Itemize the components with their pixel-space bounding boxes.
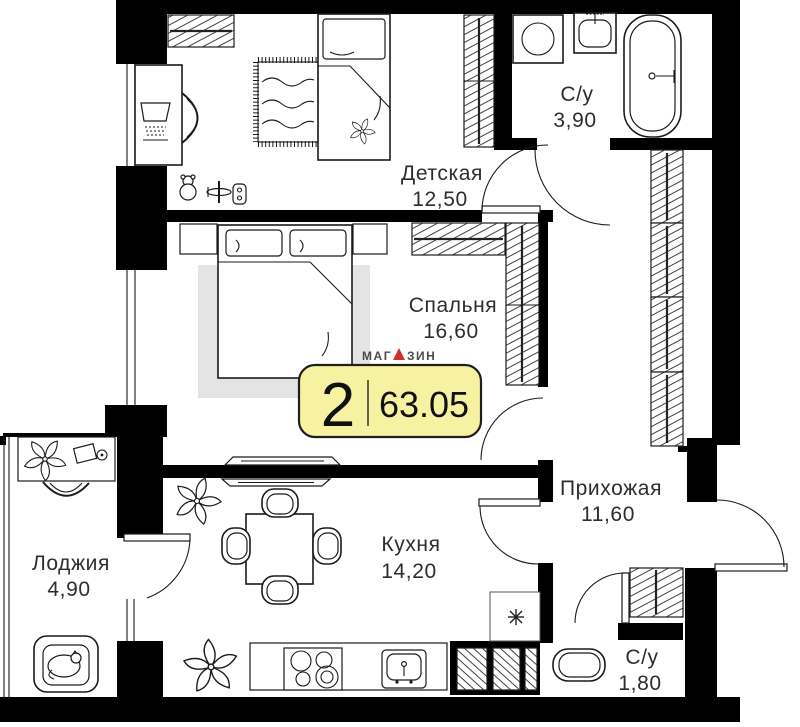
room-label-spalnya: Спальня: [409, 294, 498, 317]
floor-plan-page: Детская 12,50 С/у 3,90 Спальня 16,60 При…: [0, 0, 800, 727]
chair-icon: [262, 576, 298, 604]
window-spalnya-icon: [127, 270, 135, 405]
room-label-lodzhiya: Лоджия: [32, 552, 110, 575]
washbasin-icon: [574, 13, 616, 53]
nightstand-icon: [353, 224, 387, 254]
lodzhiya-glazing-icon: [4, 437, 9, 700]
chair-icon: [313, 528, 341, 564]
room-label-sanuzel-2: С/у: [625, 646, 658, 669]
room-label-detskaya: Детская: [401, 162, 483, 185]
balcony-desk-icon: [16, 430, 115, 488]
windows: [4, 64, 135, 700]
room-area-detskaya: 12,50: [412, 188, 468, 211]
window-kuhnya-lodzhiya-icon: [127, 599, 134, 641]
closet-detskaya-top-icon: [168, 15, 234, 47]
door-bathroom-bottom-icon: [575, 573, 629, 623]
wardrobe-entry-icon: [630, 568, 683, 617]
tv-kuhnya-icon: [222, 479, 330, 486]
wardrobe-spalnya-horizontal-icon: [412, 223, 505, 255]
room-label-prihozhaya: Прихожая: [560, 477, 662, 500]
wardrobe-hall-column-icon: [651, 150, 683, 446]
asterisk-icon: [508, 609, 524, 625]
rug-icon: [256, 60, 318, 144]
nightstand-icon: [180, 224, 217, 254]
single-bed-icon: [318, 14, 390, 160]
door-spalnya-icon: [481, 398, 543, 460]
window-detskaya-icon: [127, 64, 135, 166]
desk-icon: [135, 65, 182, 165]
furniture-kuhnya: [168, 472, 447, 698]
balcony-chair-icon: [43, 482, 89, 496]
tv-spalnya-icon: [225, 457, 340, 465]
room-label-sanuzel-1: С/у: [560, 83, 593, 106]
dining-table-icon: [246, 514, 313, 584]
logo-brand-part2: ЗИН: [407, 349, 436, 363]
room-area-sanuzel-1: 3,90: [553, 109, 596, 132]
plant-icon: [179, 635, 243, 698]
door-entrance-icon: [715, 500, 787, 571]
small-sink-icon: [553, 649, 605, 681]
floor-plan: Детская 12,50 С/у 3,90 Спальня 16,60 При…: [0, 0, 800, 727]
badge-rooms-count: 2: [321, 371, 355, 440]
chair-icon: [222, 528, 250, 564]
closet-detskaya-side-icon: [464, 15, 494, 147]
washing-machine-icon: [513, 15, 563, 63]
desk-chair-icon: [182, 93, 198, 143]
door-balcony-icon: [124, 534, 190, 598]
room-area-lodzhiya: 4,90: [47, 578, 90, 601]
logo-brand-part1: МАГ: [362, 349, 392, 363]
room-area-spalnya: 16,60: [423, 320, 479, 343]
badge-total-area: 63.05: [379, 384, 469, 425]
toys-icon: [180, 175, 246, 204]
vent-shaft-hatched-icon: [457, 648, 537, 690]
armchair-cat-icon: [34, 636, 98, 692]
vent-box-icon: [490, 592, 540, 641]
room-area-sanuzel-2: 1,80: [618, 672, 661, 695]
room-area-kuhnya: 14,20: [381, 560, 437, 583]
chair-icon: [262, 489, 298, 517]
room-area-prihozhaya: 11,60: [581, 503, 635, 526]
door-kuhnya-icon: [479, 499, 540, 564]
room-label-kuhnya: Кухня: [381, 533, 440, 556]
double-bed-icon: [218, 225, 352, 378]
wardrobe-spalnya-vertical-icon: [506, 223, 539, 385]
logo-triangle-icon: [393, 348, 405, 360]
door-detskaya-icon: [482, 145, 548, 213]
bathtub-icon: [624, 15, 681, 137]
plant-icon: [168, 472, 227, 530]
stove-icon: [284, 648, 342, 690]
listing-badge: 2 63.05: [299, 365, 481, 440]
sink-icon: [382, 650, 426, 688]
